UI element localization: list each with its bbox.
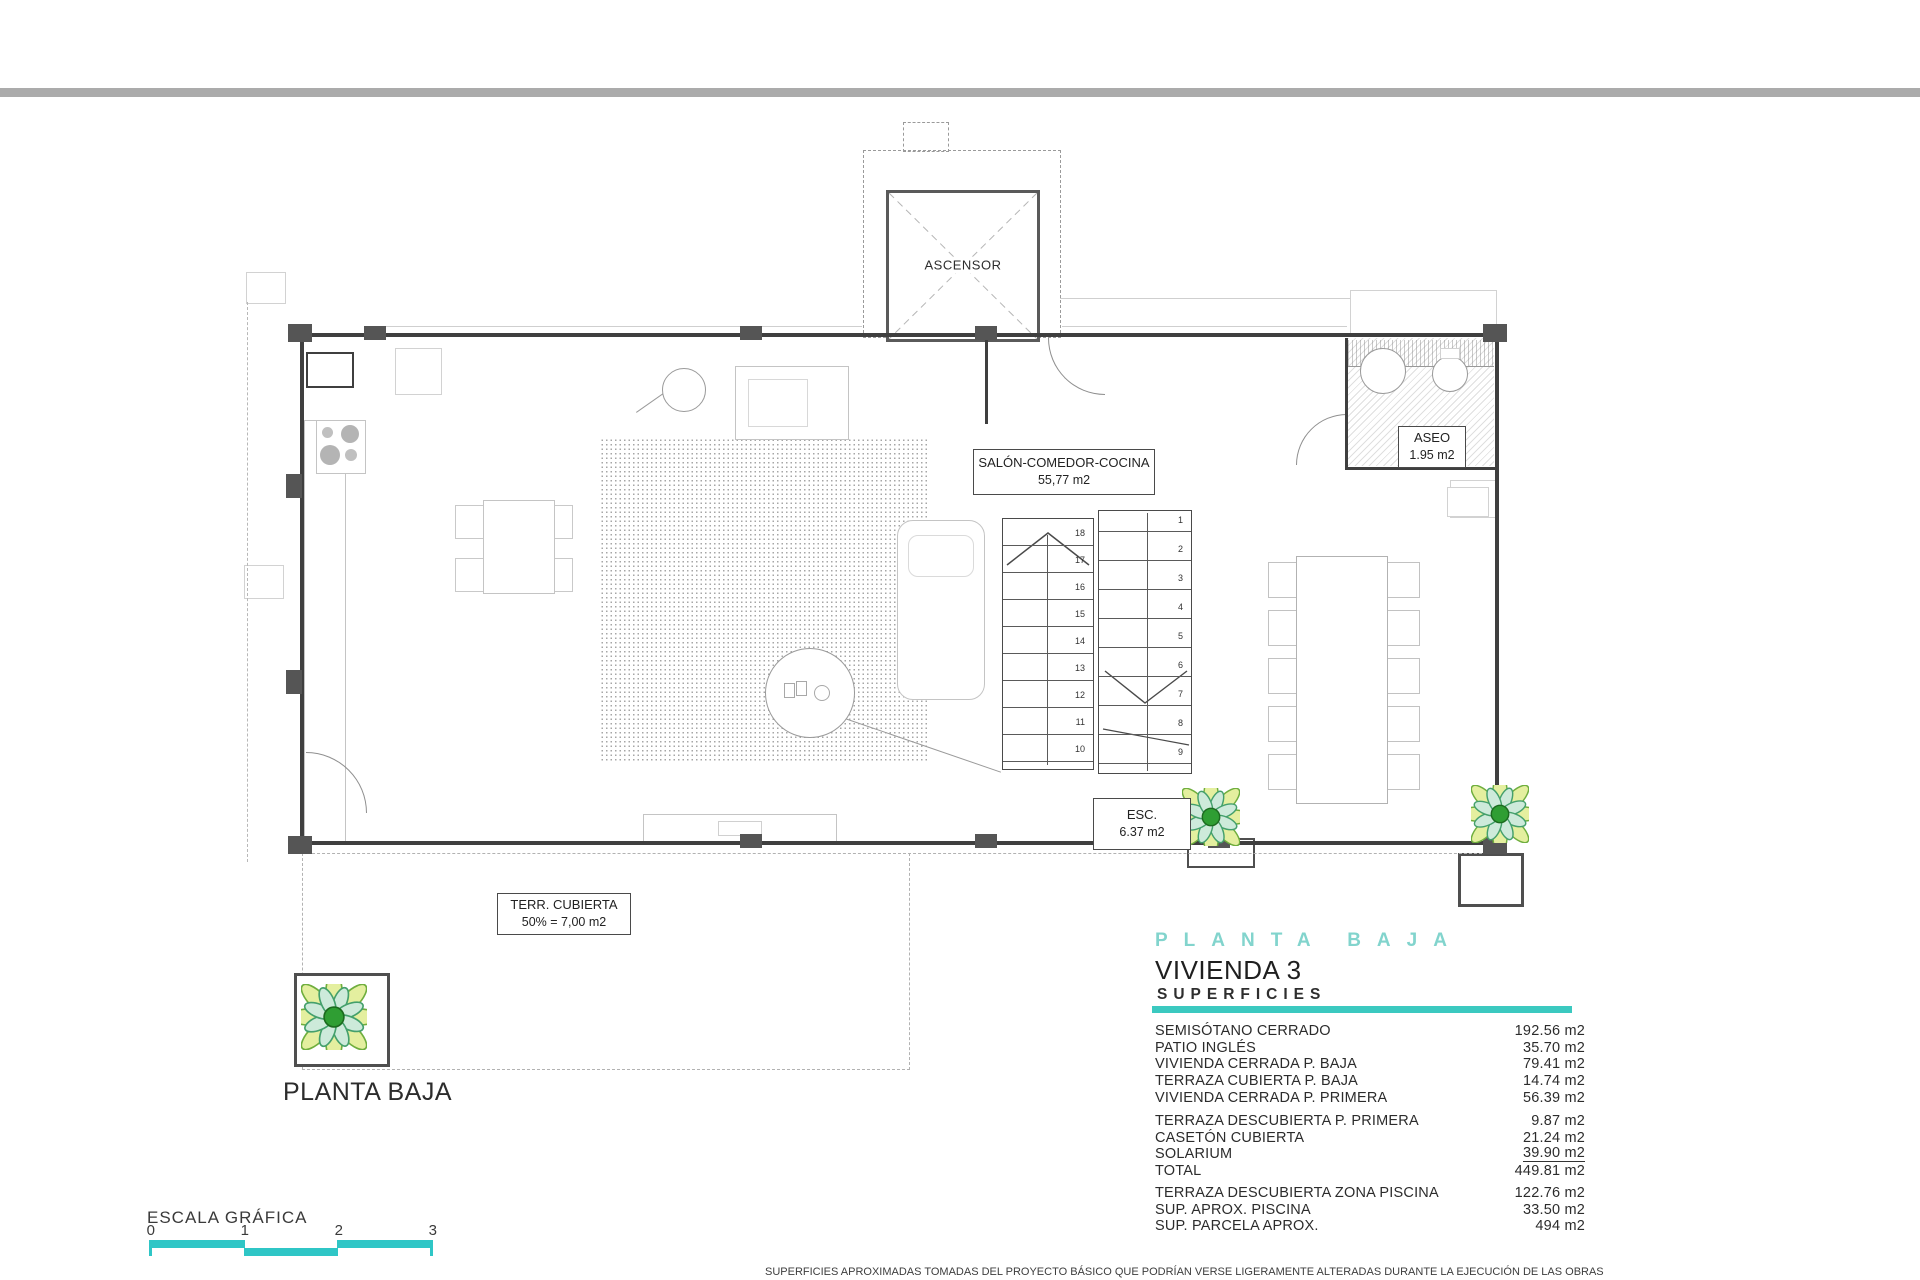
surface-label: PATIO INGLÉS [1155,1040,1256,1056]
terrace-outline [302,853,910,1070]
table-row: CASETÓN CUBIERTA21.24 m2 [1155,1129,1585,1146]
stair-tread [1003,761,1093,762]
surface-label: CASETÓN CUBIERTA [1155,1130,1304,1146]
surfaces-heading: SUPERFICIES [1157,986,1326,1004]
column [740,326,762,340]
wall-left [300,333,304,845]
wall-top [300,333,1499,337]
stair-number: 11 [1076,718,1085,727]
stair-number: 8 [1178,719,1183,728]
stair-number: 6 [1178,661,1183,670]
surface-value: 79.41 m2 [1523,1056,1585,1072]
stove [316,420,366,474]
kitchen-table [483,500,555,594]
stair-number: 17 [1075,556,1085,565]
elevator-label: ASCENSOR [921,257,1006,274]
terrace-dashed-line [302,853,1497,854]
surface-value: 56.39 m2 [1523,1090,1585,1106]
stair-number: 14 [1075,637,1085,646]
stair-flight-left: 181716151413121110 [1002,518,1094,770]
stair-tread [1003,599,1093,600]
chair [1386,562,1420,598]
kitchen-duct [306,352,354,388]
stair-number: 3 [1178,574,1183,583]
chair [1386,658,1420,694]
surface-label: TOTAL [1155,1163,1201,1179]
table-row: PATIO INGLÉS35.70 m2 [1155,1039,1585,1056]
surface-value: 21.24 m2 [1523,1130,1585,1146]
desk [1447,487,1489,517]
salon-label: SALÓN-COMEDOR-COCINA 55,77 m2 [973,449,1155,495]
door-arc [1048,338,1105,395]
surface-label: SEMISÓTANO CERRADO [1155,1023,1331,1039]
scale-tick-label: 0 [147,1222,155,1239]
accent-underline [1152,1006,1572,1013]
sink [1360,348,1406,394]
elevator-cab: ASCENSOR [886,190,1040,342]
floor-spaced-title: PLANTA BAJA [1155,930,1463,952]
surface-label: TERRAZA CUBIERTA P. BAJA [1155,1073,1358,1089]
surface-value: 14.74 m2 [1523,1073,1585,1089]
scale-tick-labels: 0123 [150,1222,432,1238]
window-line [1062,326,1347,327]
exterior-pillar [246,272,286,304]
door-arc [306,752,367,813]
wall-right [1495,333,1499,845]
column [975,326,997,340]
surface-value: 494 m2 [1535,1218,1585,1234]
stair-number: 5 [1178,632,1183,641]
round-table [765,648,855,738]
column [288,836,312,854]
plan-title: PLANTA BAJA [283,1078,452,1107]
surface-label: VIVIENDA CERRADA P. BAJA [1155,1056,1357,1072]
stair-number: 18 [1075,529,1085,538]
scale-tick-label: 1 [241,1222,249,1239]
stair-tread [1003,572,1093,573]
toilet-tank [1440,348,1460,359]
column [975,834,997,848]
table-row: TERRAZA DESCUBIERTA ZONA PISCINA122.76 m… [1155,1184,1585,1201]
surface-value: 192.56 m2 [1515,1023,1585,1039]
stair-tread [1003,734,1093,735]
column [286,670,302,694]
wall-interior [985,336,988,424]
upper-floor-outline [1350,290,1497,334]
bathroom-wall [1345,338,1348,470]
chaise-lounge [897,520,985,700]
surface-label: VIVIENDA CERRADA P. PRIMERA [1155,1090,1387,1106]
surfaces-table: SEMISÓTANO CERRADO192.56 m2PATIO INGLÉS3… [1155,1022,1585,1179]
stair-tread [1099,618,1191,619]
surface-value: 33.50 m2 [1523,1202,1585,1218]
rug [600,438,930,763]
column [286,474,302,498]
table-row: TOTAL449.81 m2 [1155,1162,1585,1179]
stair-number: 7 [1178,690,1183,699]
stair-number: 10 [1075,745,1085,754]
esc-label-name: ESC. [1094,807,1190,824]
wall-bottom [300,841,1499,845]
surface-label: TERRAZA DESCUBIERTA ZONA PISCINA [1155,1185,1439,1201]
scale-tick-label: 3 [429,1222,437,1239]
floor-lamp [662,368,706,412]
surface-value: 39.90 m2 [1523,1145,1585,1162]
surface-value: 122.76 m2 [1515,1185,1585,1201]
dwelling-title: VIVIENDA 3 [1155,955,1302,986]
table-row: TERRAZA CUBIERTA P. BAJA14.74 m2 [1155,1072,1585,1089]
stair-number: 15 [1075,610,1085,619]
plant-icon [1471,785,1529,843]
disclaimer-text: SUPERFICIES APROXIMADAS TOMADAS DEL PROY… [765,1266,1445,1279]
table-row: SUP. APROX. PISCINA33.50 m2 [1155,1201,1585,1218]
stair-tread [1003,680,1093,681]
chair [1386,706,1420,742]
door-arc [1296,414,1347,465]
surface-label: SUP. PARCELA APROX. [1155,1218,1319,1234]
overhang-dashed-line [247,302,248,862]
stair-tread [1099,734,1191,735]
esc-label: ESC. 6.37 m2 [1093,798,1191,850]
surface-value: 35.70 m2 [1523,1040,1585,1056]
stair-number: 2 [1178,545,1183,554]
surface-value: 449.81 m2 [1515,1163,1585,1179]
stair-tread [1003,707,1093,708]
terraza-label-area: 50% = 7,00 m2 [498,914,630,930]
stair-number: 4 [1178,603,1183,612]
surfaces-extra-table: TERRAZA DESCUBIERTA ZONA PISCINA122.76 m… [1155,1184,1585,1234]
aseo-label-area: 1.95 m2 [1399,447,1465,463]
stair-tread [1099,647,1191,648]
kitchen-appliance [395,348,442,395]
terraza-label: TERR. CUBIERTA 50% = 7,00 m2 [497,893,631,935]
column [364,326,386,340]
stair-flight-right: 123456789 [1098,510,1192,774]
elevator-shaft-outline [903,122,949,152]
column [288,324,312,342]
stair-number: 13 [1075,664,1085,673]
surface-label: TERRAZA DESCUBIERTA P. PRIMERA [1155,1113,1419,1129]
scale-bar [150,1240,432,1256]
stair-number: 16 [1075,583,1085,592]
table-row: SUP. PARCELA APROX.494 m2 [1155,1218,1585,1235]
surface-label: SOLARIUM [1155,1146,1232,1162]
surface-label: SUP. APROX. PISCINA [1155,1202,1311,1218]
salon-label-name: SALÓN-COMEDOR-COCINA [974,455,1154,472]
column [1483,324,1507,342]
plant-icon [301,984,367,1050]
table-row: SEMISÓTANO CERRADO192.56 m2 [1155,1022,1585,1039]
scale-tick-label: 2 [335,1222,343,1239]
stair-tread [1099,763,1191,764]
chair [1386,754,1420,790]
table-row: TERRAZA DESCUBIERTA P. PRIMERA9.87 m2 [1155,1112,1585,1129]
sofa [735,366,849,440]
stair-number: 12 [1075,691,1085,700]
terraza-label-name: TERR. CUBIERTA [498,897,630,914]
esc-label-area: 6.37 m2 [1094,824,1190,840]
stair-tread [1099,676,1191,677]
planter [1458,853,1524,907]
dining-table [1296,556,1388,804]
stair-number: 1 [1178,516,1183,525]
stair-tread [1099,531,1191,532]
stair-number: 9 [1178,748,1183,757]
surface-value: 9.87 m2 [1531,1113,1585,1129]
table-row: SOLARIUM39.90 m2 [1155,1146,1585,1163]
stair-tread [1099,705,1191,706]
aseo-label-name: ASEO [1399,430,1465,447]
toilet [1432,356,1468,392]
sheet: ASCENSOR [0,0,1920,1280]
chair [1386,610,1420,646]
stair-tread [1003,653,1093,654]
stair-tread [1099,560,1191,561]
top-divider [0,88,1920,97]
stair-tread [1003,545,1093,546]
column [740,834,762,848]
aseo-label: ASEO 1.95 m2 [1398,426,1466,468]
table-row: VIVIENDA CERRADA P. BAJA79.41 m2 [1155,1056,1585,1073]
window-line [1060,298,1350,299]
salon-label-area: 55,77 m2 [974,472,1154,488]
window-line [370,326,862,327]
table-row: VIVIENDA CERRADA P. PRIMERA56.39 m2 [1155,1089,1585,1106]
stair-tread [1099,589,1191,590]
stair-tread [1003,626,1093,627]
exterior-pillar [244,565,284,599]
